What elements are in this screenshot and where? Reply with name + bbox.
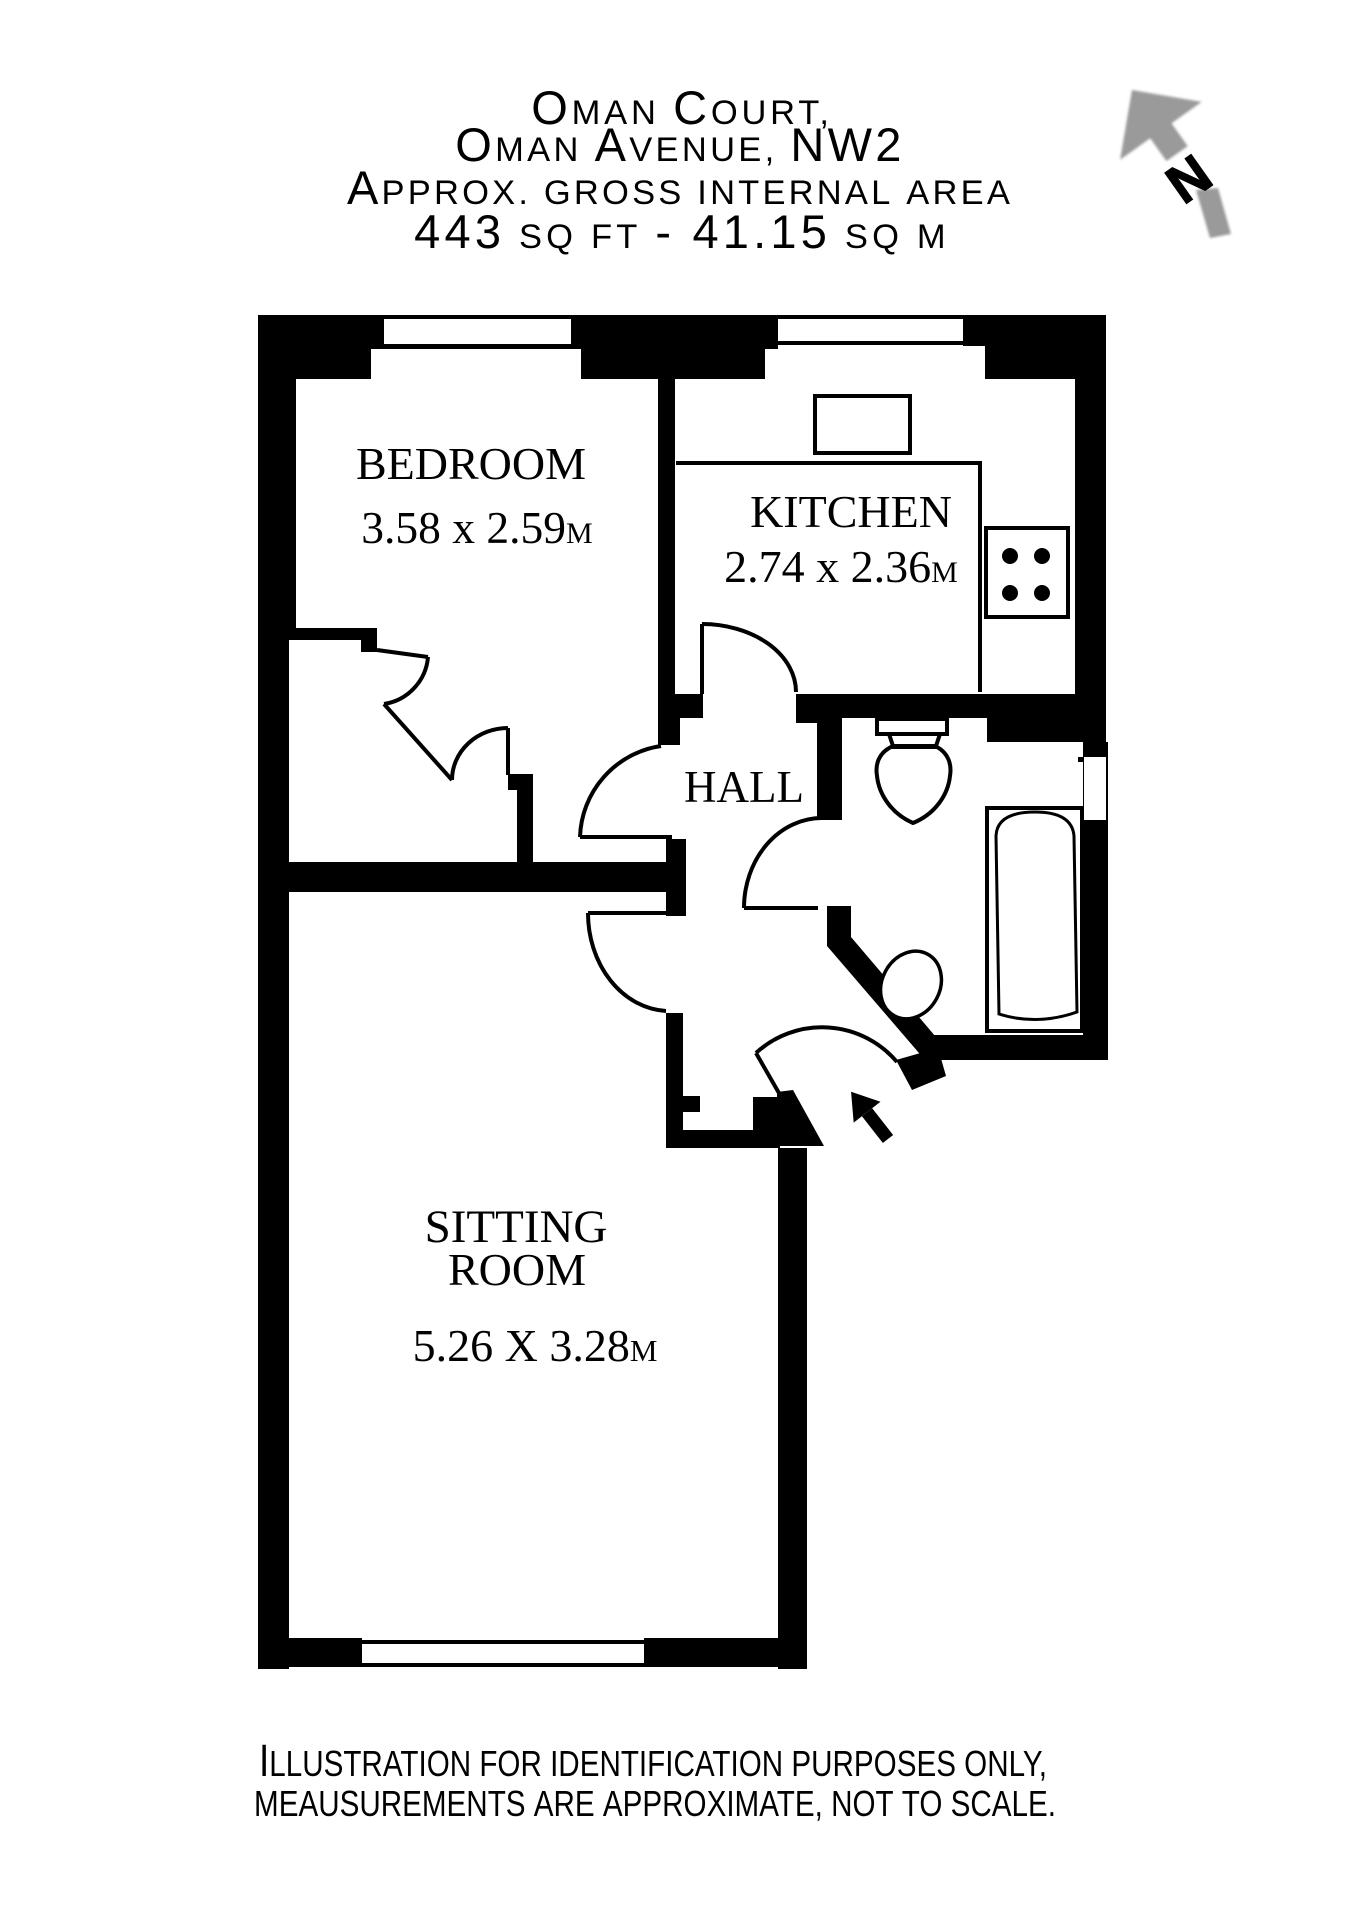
svg-text:KITCHEN: KITCHEN — [750, 486, 952, 537]
svg-text:443 SQ FT - 41.15 SQ M: 443 SQ FT - 41.15 SQ M — [414, 205, 950, 258]
svg-text:3.58 x 2.59M: 3.58 x 2.59M — [361, 502, 592, 553]
svg-text:HALL: HALL — [684, 762, 804, 812]
svg-text:5.26 X 3.28M: 5.26 X 3.28M — [413, 1320, 658, 1371]
svg-text:MEAUSUREMENTS ARE APPROXIMATE,: MEAUSUREMENTS ARE APPROXIMATE, NOT TO SC… — [254, 1783, 1056, 1823]
svg-text:ILLUSTRATION FOR IDENTIFICATIO: ILLUSTRATION FOR IDENTIFICATION PURPOSES… — [259, 1736, 1047, 1786]
svg-text:ROOM: ROOM — [448, 1244, 586, 1295]
svg-text:BEDROOM: BEDROOM — [356, 438, 586, 489]
svg-text:2.74 x 2.36M: 2.74 x 2.36M — [724, 541, 958, 592]
svg-text:OMAN COURT,: OMAN COURT, — [531, 81, 832, 134]
